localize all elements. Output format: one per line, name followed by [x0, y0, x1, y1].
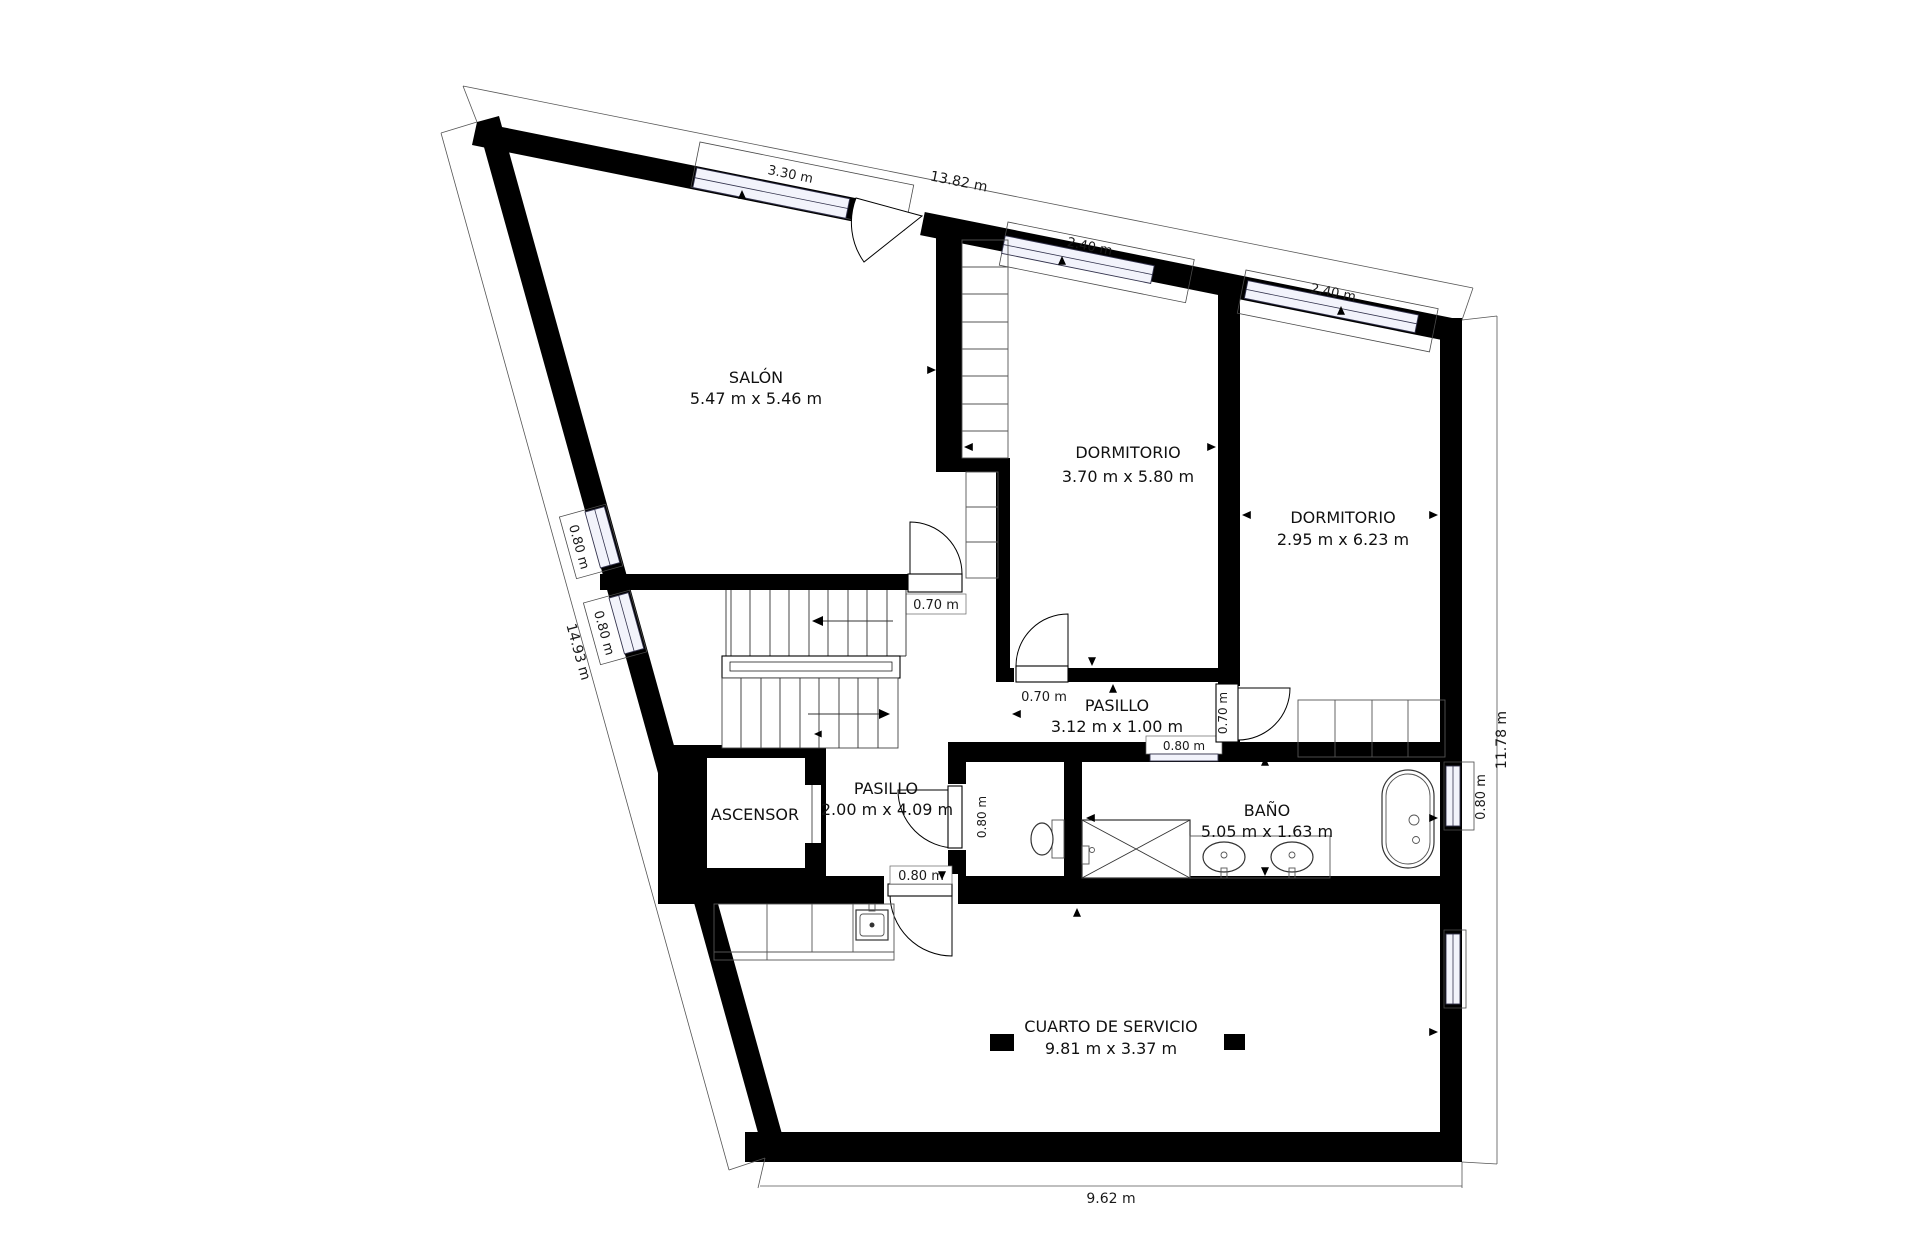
window-left-2-label: 0.80 m [590, 609, 617, 657]
room-dims-pasillo2: 2.00 m x 4.09 m [821, 800, 953, 819]
room-dims-bano: 5.05 m x 1.63 m [1201, 822, 1333, 841]
wall-bottom [745, 1132, 1462, 1162]
salon-door: 0.70 m [906, 522, 966, 614]
bathroom-hall-door-label: 0.80 m [975, 796, 989, 838]
room-label-salon: SALÓN [729, 368, 783, 387]
window-left-1-label: 0.80 m [565, 523, 592, 571]
toilet-icon [1031, 820, 1064, 858]
dormitorio2-door-label: 0.70 m [1216, 692, 1230, 734]
room-dims-dormitorio2: 2.95 m x 6.23 m [1277, 530, 1409, 549]
wall-dorm1-dorm2 [1218, 292, 1240, 748]
elevator-door-slot [805, 785, 821, 843]
dormitorio2-door: 0.70 m [1216, 684, 1290, 742]
service-door: 0.80 m [888, 866, 952, 956]
window-service [1444, 930, 1466, 1008]
vanity-sinks-icon [1190, 836, 1330, 878]
dormitorio1-door-label: 0.70 m [1021, 690, 1067, 705]
dim-right-total: 11.78 m [1494, 711, 1510, 769]
wall-right [1440, 318, 1462, 1162]
room-dims-pasillo1: 3.12 m x 1.00 m [1051, 717, 1183, 736]
closet-salon-corner [966, 472, 998, 578]
wall-wc-bano [1064, 742, 1082, 886]
pillar-right [1224, 1034, 1245, 1050]
room-label-ascensor: ASCENSOR [711, 805, 799, 824]
wall-salon-dorm1-upper [936, 236, 962, 472]
room-label-dormitorio1: DORMITORIO [1075, 443, 1180, 462]
salon-door-label: 0.70 m [913, 598, 959, 613]
room-label-bano: BAÑO [1244, 801, 1290, 820]
stair-lower-flight [722, 678, 898, 748]
dim-bottom-total: 9.62 m [1086, 1191, 1135, 1207]
room-label-pasillo1: PASILLO [1085, 696, 1149, 715]
dormitorio1-door: 0.70 m [1016, 614, 1068, 705]
window-bathroom-interior-label: 0.80 m [1163, 739, 1205, 753]
stairs [722, 590, 906, 748]
service-door-label: 0.80 m [898, 869, 944, 884]
floorplan-svg: 3.30 m 2.40 m 2.40 m 0.80 m 0.8 [0, 0, 1920, 1245]
room-label-cuarto-servicio: CUARTO DE SERVICIO [1024, 1017, 1197, 1036]
window-bathroom-exterior-label: 0.80 m [1474, 774, 1489, 820]
room-dims-dormitorio1: 3.70 m x 5.80 m [1062, 467, 1194, 486]
pillar-left [990, 1034, 1014, 1051]
room-dims-cuarto-servicio: 9.81 m x 3.37 m [1045, 1039, 1177, 1058]
floorplan-canvas: 3.30 m 2.40 m 2.40 m 0.80 m 0.8 [0, 0, 1920, 1245]
window-bathroom-exterior [1444, 762, 1474, 830]
closet-dorm1 [962, 240, 1008, 458]
room-label-dormitorio2: DORMITORIO [1290, 508, 1395, 527]
dim-top-total: 13.82 m [929, 168, 989, 195]
dim-left-total: 14.93 m [562, 622, 593, 682]
kitchen-counter-icon [714, 904, 894, 960]
stair-landing [722, 656, 900, 678]
shower-icon [1082, 820, 1190, 878]
room-dims-salon: 5.47 m x 5.46 m [690, 389, 822, 408]
bathtub-icon [1382, 770, 1434, 868]
room-label-pasillo2: PASILLO [854, 779, 918, 798]
